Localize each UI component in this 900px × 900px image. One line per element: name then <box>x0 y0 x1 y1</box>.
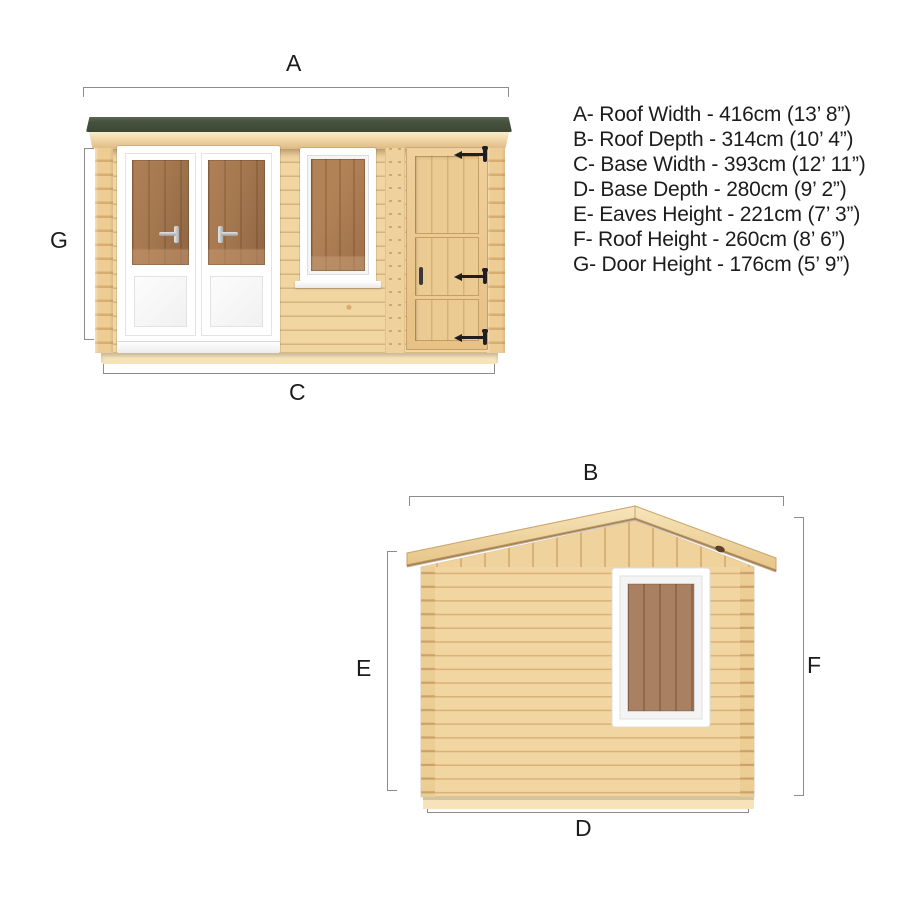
door-panel-right <box>208 274 265 329</box>
hinge-pivot <box>483 148 487 162</box>
door-leaf-left <box>125 153 196 336</box>
legend-eaves-height: E- Eaves Height - 221cm (7’ 3”) <box>573 202 893 227</box>
dim-bracket-base-width <box>103 364 495 374</box>
legend-roof-width: A- Roof Width - 416cm (13’ 8”) <box>573 102 893 127</box>
dim-bracket-door-height <box>84 148 94 340</box>
legend-door-height: G- Door Height - 176cm (5’ 9”) <box>573 252 893 277</box>
door-rail-upper <box>415 233 479 238</box>
dim-label-base-width: C <box>289 381 306 404</box>
t-hinge-top <box>461 153 487 156</box>
door-handle-left <box>159 232 176 236</box>
dim-bracket-roof-width <box>83 87 509 97</box>
legend-base-depth: D- Base Depth - 280cm (9’ 2”) <box>573 177 893 202</box>
page: A G C <box>0 0 900 900</box>
dim-label-roof-height: F <box>807 654 821 677</box>
side-elevation-drawing <box>390 492 790 822</box>
corner-logs-front <box>421 567 435 797</box>
legend-roof-depth: B- Roof Depth - 314cm (10’ 4”) <box>573 127 893 152</box>
door-rail-lower <box>415 295 479 300</box>
dim-label-roof-width: A <box>286 52 301 75</box>
legend-base-width: C- Base Width - 393cm (12’ 11”) <box>573 152 893 177</box>
side-window-glass-sheen <box>628 584 694 711</box>
hinge-pivot <box>483 270 487 284</box>
base-shadow <box>423 797 754 800</box>
dimension-legend: A- Roof Width - 416cm (13’ 8”) B- Roof D… <box>573 102 893 277</box>
door-handle-right <box>221 232 238 236</box>
corner-logs-back <box>740 567 754 797</box>
front-window <box>300 148 376 282</box>
dim-bracket-roof-height <box>794 517 804 796</box>
door-glass-left <box>132 160 189 265</box>
t-hinge-bottom <box>461 336 487 339</box>
dim-label-door-height: G <box>50 229 68 252</box>
t-hinge-middle <box>461 275 487 278</box>
front-window-glass <box>311 159 365 271</box>
front-roof-felt <box>86 117 512 132</box>
side-store-door <box>406 147 488 350</box>
double-glazed-double-door <box>117 146 280 353</box>
hinge-pivot <box>483 331 487 345</box>
side-store-door-panel <box>415 156 479 341</box>
store-door-handle <box>419 267 423 285</box>
front-window-sill <box>295 281 381 288</box>
corner-joint-strip <box>385 148 405 353</box>
corner-logs-right <box>487 148 505 353</box>
corner-logs-left <box>95 148 113 353</box>
door-glass-right <box>208 160 265 265</box>
door-panel-left <box>132 274 189 329</box>
dim-label-eaves-height: E <box>356 657 371 680</box>
dim-label-roof-depth: B <box>583 461 598 484</box>
legend-roof-height: F- Roof Height - 260cm (8’ 6”) <box>573 227 893 252</box>
front-floor-base <box>101 353 498 364</box>
door-threshold <box>117 341 280 353</box>
door-leaf-right <box>201 153 272 336</box>
